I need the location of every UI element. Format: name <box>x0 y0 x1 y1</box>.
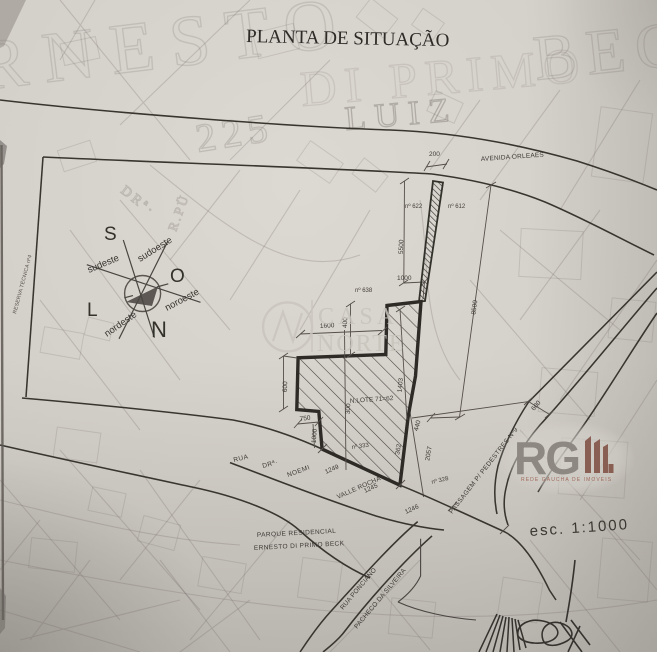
svg-text:CASA: CASA <box>318 304 398 330</box>
svg-text:600: 600 <box>282 381 289 392</box>
svg-text:nº 622: nº 622 <box>405 203 423 210</box>
svg-text:N: N <box>151 317 167 342</box>
svg-text:300: 300 <box>345 403 353 415</box>
svg-text:5500: 5500 <box>398 239 406 254</box>
svg-text:1000: 1000 <box>311 428 319 443</box>
svg-text:PLANTA DE SITUAÇÃO: PLANTA DE SITUAÇÃO <box>246 25 450 51</box>
svg-text:REDE GAUCHA DE IMOVEIS: REDE GAUCHA DE IMOVEIS <box>521 477 612 483</box>
svg-text:nº 612: nº 612 <box>448 203 466 210</box>
svg-text:O: O <box>170 266 185 287</box>
svg-text:nº 638: nº 638 <box>355 287 373 294</box>
svg-text:200: 200 <box>429 151 440 158</box>
svg-text:NORTE: NORTE <box>317 331 406 357</box>
svg-text:1403: 1403 <box>397 377 405 392</box>
svg-text:1000: 1000 <box>397 275 412 282</box>
svg-text:L: L <box>87 300 98 321</box>
svg-text:S: S <box>104 224 117 245</box>
